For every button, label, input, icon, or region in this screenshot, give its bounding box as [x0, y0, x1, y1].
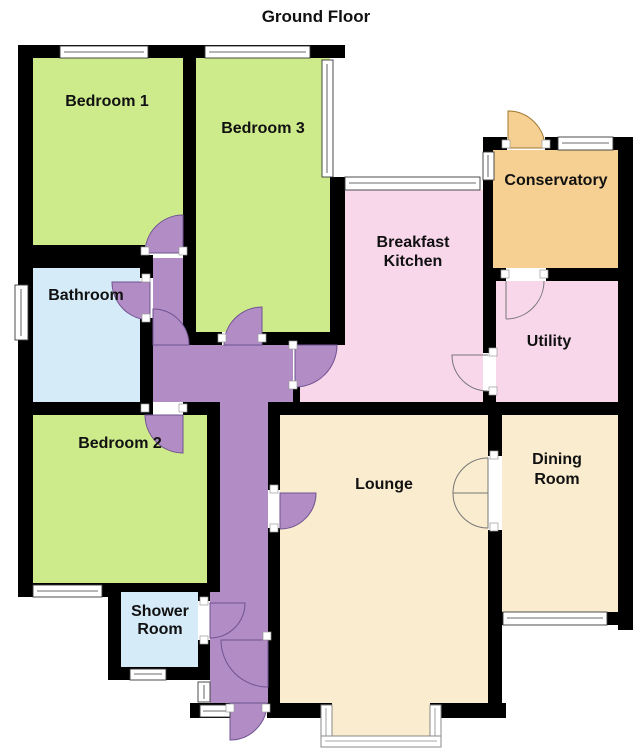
room-lounge [280, 415, 488, 736]
room-bedroom1 [33, 58, 183, 245]
label-kitchen-line2: Kitchen [384, 253, 443, 270]
label-dining-line1: Dining [532, 451, 582, 468]
label-bedroom3: Bedroom 3 [221, 120, 305, 137]
window-shower-bottom [130, 669, 166, 680]
window-entrance [200, 705, 230, 717]
window-bedroom3-top [205, 46, 310, 58]
plan-title: Ground Floor [262, 7, 371, 26]
window-conservatory-top [558, 137, 613, 150]
window-vestibule-left [198, 682, 210, 702]
label-bathroom: Bathroom [48, 287, 124, 304]
floorplan-canvas: Ground Floor Bedroom 1 Bedroom 3 Bathroo… [0, 0, 633, 750]
door-arc-conservatory-exterior [508, 111, 545, 148]
room-dining [502, 415, 618, 612]
floorplan-ground-floor: Ground Floor Bedroom 1 Bedroom 3 Bathroo… [0, 0, 633, 750]
window-dining-bottom [503, 612, 607, 625]
window-bedroom3-right [322, 60, 333, 177]
window-kitchen-top [345, 177, 480, 190]
window-bedroom1-top [60, 46, 148, 58]
window-conservatory-left [483, 152, 494, 180]
label-shower-line2: Room [137, 621, 182, 638]
label-bedroom2: Bedroom 2 [78, 435, 162, 452]
room-conservatory [493, 150, 618, 268]
label-dining-line2: Room [534, 471, 579, 488]
label-bedroom1: Bedroom 1 [65, 93, 149, 110]
door-arc-entrance [230, 703, 267, 740]
label-lounge: Lounge [355, 476, 413, 493]
label-utility: Utility [527, 333, 572, 350]
label-conservatory: Conservatory [504, 172, 607, 189]
window-bedroom2-bottom [33, 585, 102, 597]
label-shower-line1: Shower [131, 603, 189, 620]
window-bathroom-left [15, 285, 28, 340]
label-kitchen-line1: Breakfast [377, 234, 451, 251]
room-bedroom3 [196, 58, 330, 332]
